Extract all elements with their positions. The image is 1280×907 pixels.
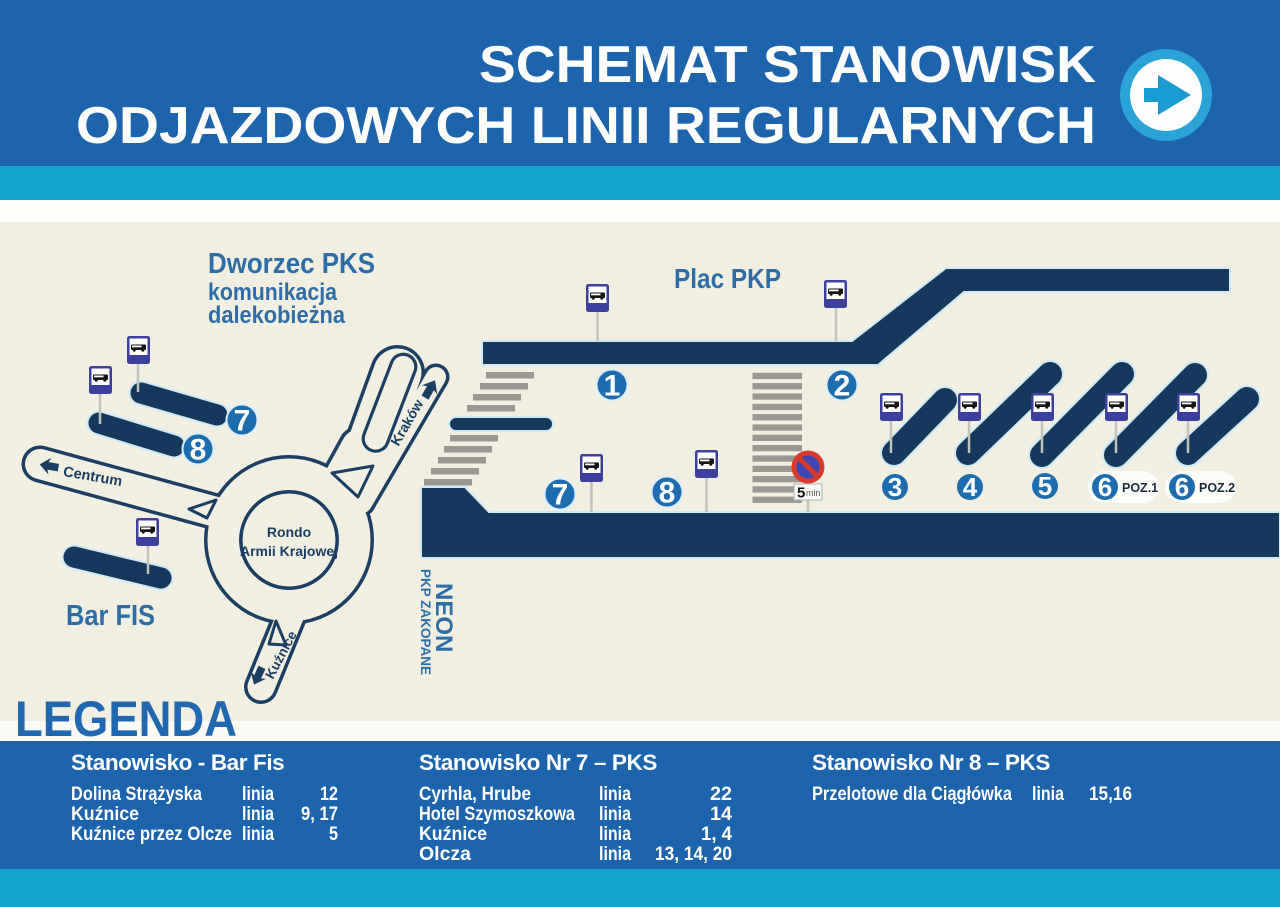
svg-text:Kuźnice przez Olcze: Kuźnice przez Olcze [71, 824, 232, 845]
svg-text:Dworzec PKS: Dworzec PKS [208, 248, 375, 280]
svg-text:6: 6 [1175, 472, 1189, 502]
svg-text:linia: linia [599, 844, 631, 865]
svg-text:Cyrhla, Hrube: Cyrhla, Hrube [419, 784, 531, 805]
svg-text:Armii Krajowej: Armii Krajowej [240, 543, 338, 559]
svg-text:6: 6 [1098, 472, 1112, 502]
svg-text:Stanowisko - Bar Fis: Stanowisko - Bar Fis [71, 750, 284, 775]
svg-text:linia: linia [242, 784, 274, 805]
svg-text:15,16: 15,16 [1089, 784, 1132, 805]
svg-text:7: 7 [234, 405, 251, 438]
svg-text:3: 3 [888, 472, 902, 502]
svg-text:9, 17: 9, 17 [301, 804, 338, 825]
svg-text:Hotel Szymoszkowa: Hotel Szymoszkowa [419, 804, 575, 825]
svg-text:LEGENDA: LEGENDA [15, 691, 237, 747]
svg-text:linia: linia [1032, 784, 1064, 805]
svg-text:Olcza: Olcza [419, 844, 471, 865]
svg-text:Kuźnice: Kuźnice [419, 824, 487, 845]
svg-text:ODJAZDOWYCH LINII REGULARNYCH: ODJAZDOWYCH LINII REGULARNYCH [76, 97, 1096, 155]
svg-text:linia: linia [242, 824, 274, 845]
svg-text:1: 1 [604, 370, 621, 403]
svg-text:5: 5 [329, 824, 338, 845]
svg-text:Przelotowe dla Ciągłówka: Przelotowe dla Ciągłówka [812, 784, 1012, 805]
svg-text:1, 4: 1, 4 [701, 824, 732, 845]
svg-text:8: 8 [190, 434, 207, 467]
svg-text:Plac PKP: Plac PKP [674, 263, 781, 294]
svg-text:5: 5 [1038, 471, 1052, 501]
svg-text:4: 4 [963, 472, 978, 502]
svg-text:13, 14, 20: 13, 14, 20 [655, 844, 732, 865]
svg-text:Stanowisko Nr 8 – PKS: Stanowisko Nr 8 – PKS [812, 750, 1050, 775]
svg-text:dalekobieżna: dalekobieżna [208, 302, 346, 329]
svg-text:POZ.1: POZ.1 [1122, 481, 1158, 495]
svg-text:Rondo: Rondo [267, 524, 311, 540]
svg-text:linia: linia [242, 804, 274, 825]
svg-text:Stanowisko Nr 7 – PKS: Stanowisko Nr 7 – PKS [419, 750, 657, 775]
svg-text:linia: linia [599, 784, 631, 805]
svg-text:NEON: NEON [430, 583, 457, 652]
svg-text:linia: linia [599, 804, 631, 825]
svg-text:7: 7 [552, 479, 569, 512]
svg-text:12: 12 [320, 784, 338, 805]
svg-text:14: 14 [710, 804, 732, 825]
svg-text:Dolina Strążyska: Dolina Strążyska [71, 784, 202, 805]
svg-text:2: 2 [834, 370, 851, 403]
svg-text:Bar FIS: Bar FIS [66, 600, 155, 632]
svg-text:linia: linia [599, 824, 631, 845]
svg-text:SCHEMAT STANOWISK: SCHEMAT STANOWISK [479, 36, 1096, 94]
svg-text:22: 22 [710, 784, 732, 805]
svg-text:POZ.2: POZ.2 [1199, 481, 1235, 495]
svg-text:PKP ZAKOPANE: PKP ZAKOPANE [418, 569, 433, 675]
svg-text:min: min [806, 488, 821, 498]
svg-text:8: 8 [659, 477, 676, 510]
svg-text:Kuźnice: Kuźnice [71, 804, 139, 825]
svg-text:5: 5 [797, 485, 805, 502]
